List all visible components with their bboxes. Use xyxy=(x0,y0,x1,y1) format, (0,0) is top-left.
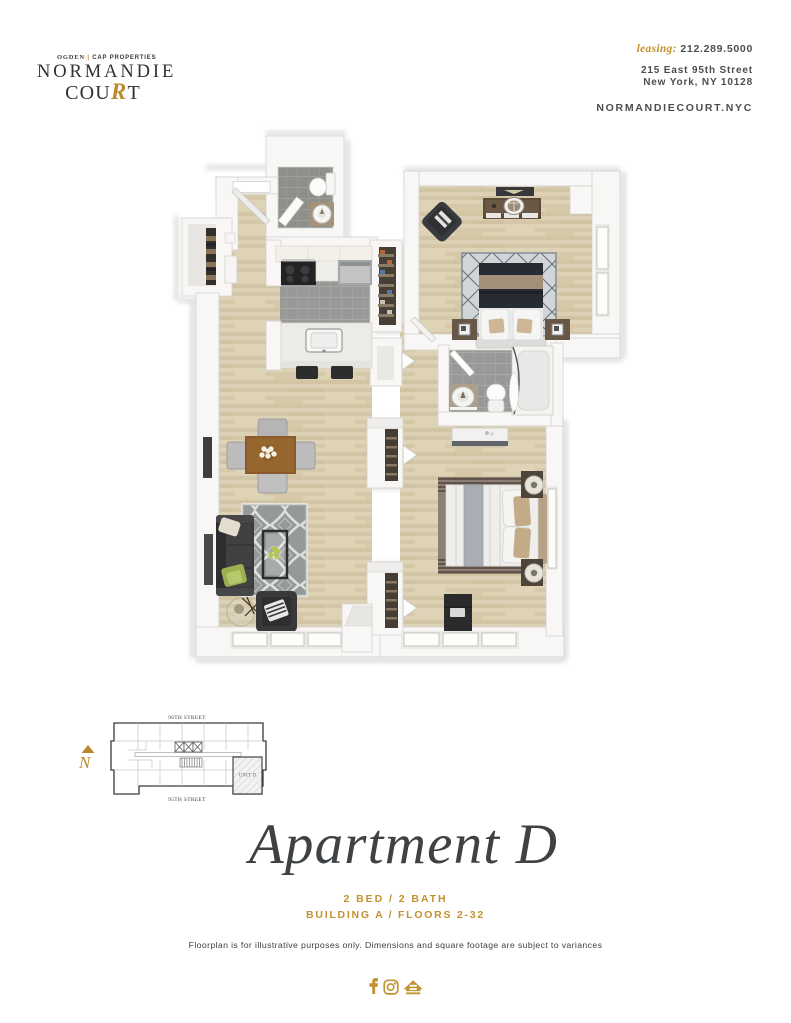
svg-text:96TH STREET: 96TH STREET xyxy=(168,715,206,721)
svg-text:UNIT D: UNIT D xyxy=(239,774,257,779)
svg-text:95TH STREET: 95TH STREET xyxy=(168,797,206,803)
svg-text:N: N xyxy=(78,753,92,772)
